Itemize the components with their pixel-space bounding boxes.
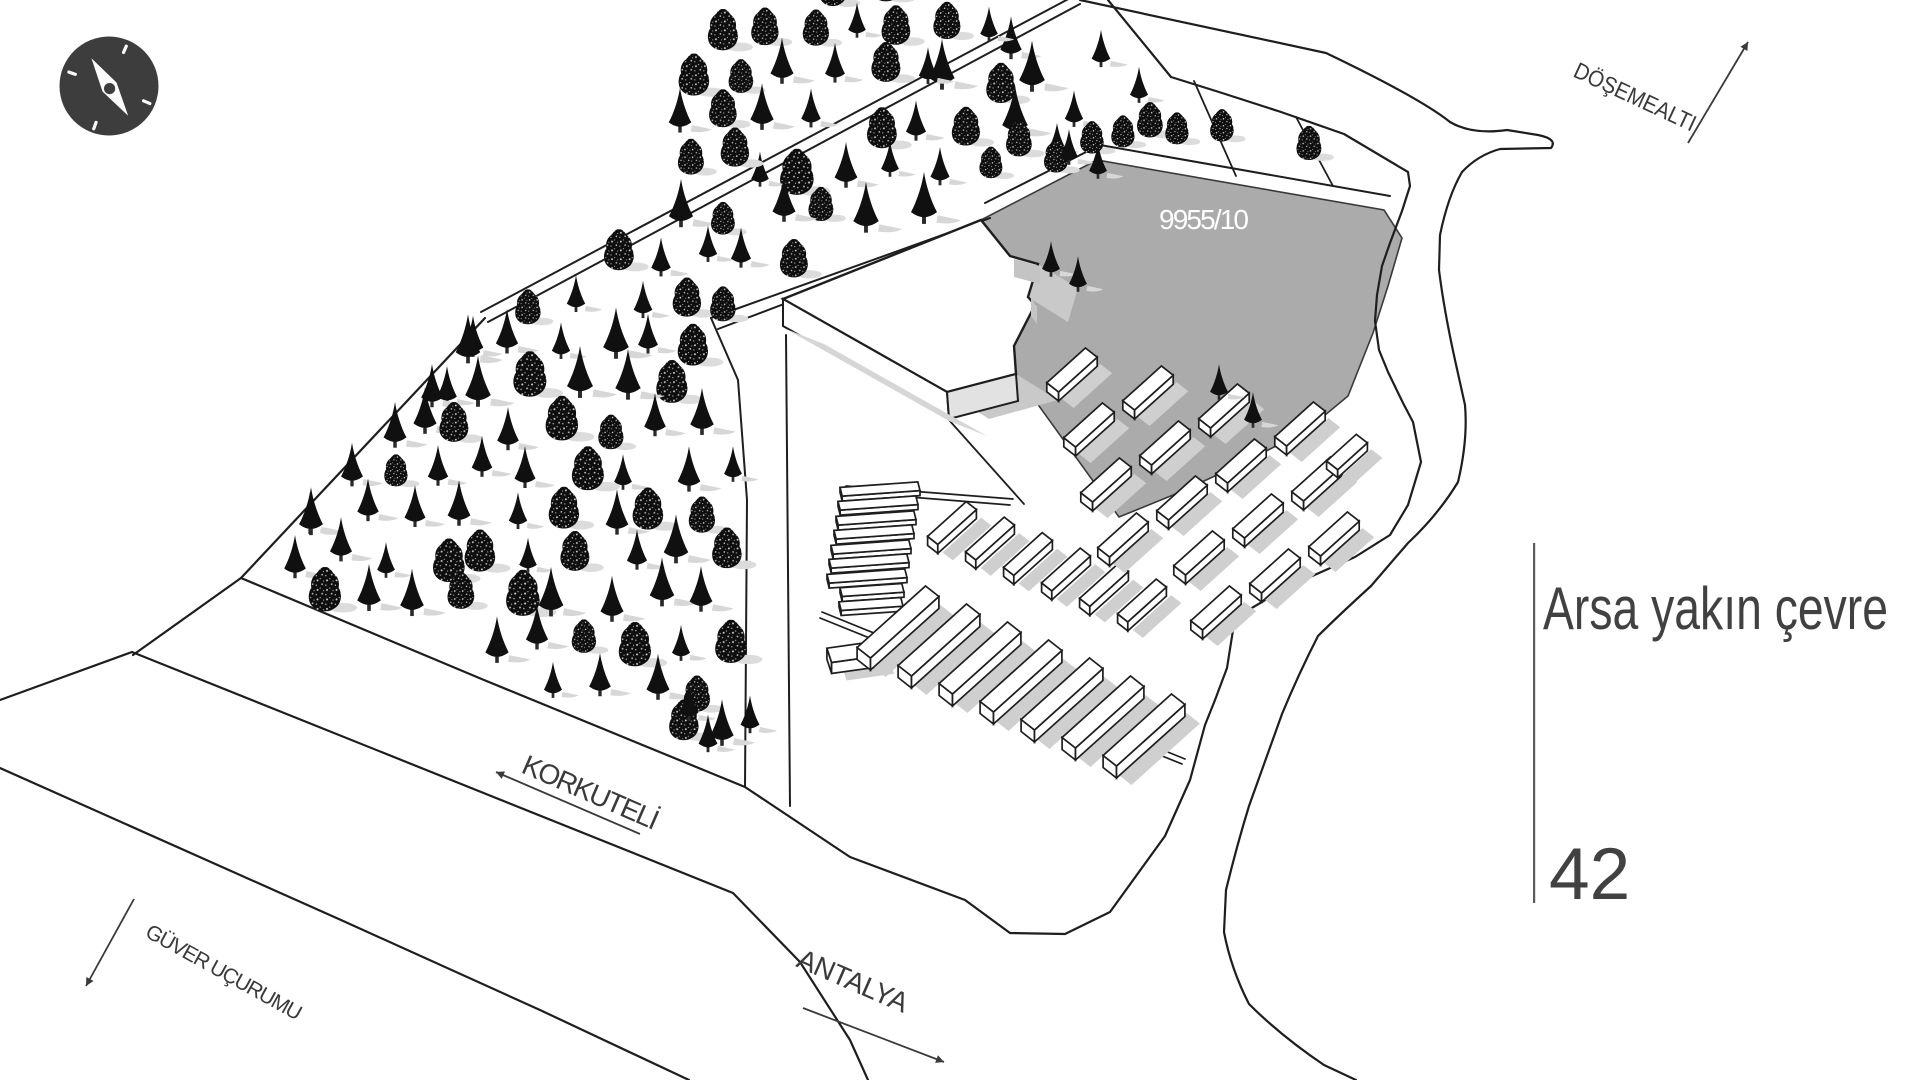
svg-text:42: 42 — [1549, 834, 1630, 915]
svg-text:9955/10: 9955/10 — [1159, 204, 1249, 235]
svg-text:Arsa yakın çevre: Arsa yakın çevre — [1543, 575, 1888, 642]
